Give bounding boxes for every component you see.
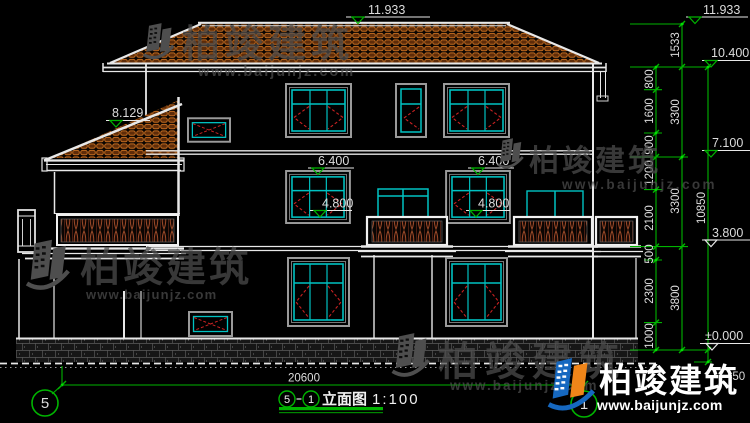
svg-text:www.baijunjz.com: www.baijunjz.com: [197, 64, 355, 80]
svg-text:www.baijunjz.com: www.baijunjz.com: [85, 287, 217, 302]
svg-text:6.400: 6.400: [318, 154, 349, 168]
window-1f-small: [189, 312, 232, 336]
svg-text:10.400: 10.400: [711, 46, 749, 60]
svg-text:5: 5: [41, 395, 49, 412]
marker-ridge-right: 11.933: [686, 3, 748, 24]
elevation-drawing-canvas: 800 1600 900 1200 2100 500 2300 1000 153…: [0, 0, 750, 423]
svg-text:3.800: 3.800: [712, 226, 743, 240]
title-axis-from: 5: [284, 394, 290, 406]
title-underline-thin: [279, 412, 383, 413]
window-3f-left: [286, 84, 351, 137]
marker-3800: 3.800: [702, 226, 750, 247]
floor-band-3f: [146, 151, 593, 154]
dim-800: 800: [644, 69, 656, 88]
terrace-pilaster: [18, 210, 35, 252]
balcony-side: [594, 217, 643, 338]
title-axis-to: 1: [308, 394, 314, 406]
svg-text:8.129: 8.129: [112, 106, 143, 120]
dim-3300-b: 3300: [670, 188, 682, 214]
dim-1533: 1533: [670, 32, 682, 58]
balcony-door-center: [378, 189, 428, 217]
watermark-right: 柏竣建筑 www.baijunjz.com: [498, 138, 717, 192]
svg-text:7.100: 7.100: [712, 136, 743, 150]
svg-text:柏竣建筑: 柏竣建筑: [80, 246, 252, 290]
elevation-drawing: 800 1600 900 1200 2100 500 2300 1000 153…: [0, 0, 750, 423]
svg-text:20600: 20600: [288, 373, 320, 385]
svg-text:11.933: 11.933: [368, 3, 405, 17]
svg-text:柏竣建筑: 柏竣建筑: [182, 24, 354, 66]
main-roof: [103, 23, 608, 101]
dim-3800: 3800: [670, 285, 682, 311]
dim-10850: 10850: [696, 192, 708, 224]
axis-bubble-left: 5: [32, 385, 62, 416]
balcony-door-right: [527, 191, 583, 217]
dim-500: 500: [644, 244, 656, 263]
title-underline: [279, 407, 383, 410]
window-1f-left: [288, 258, 349, 326]
window-3f-small: [188, 118, 230, 141]
marker-eave-right: 10.400: [702, 46, 750, 67]
logo-url: www.baijunjz.com: [596, 397, 723, 413]
svg-text:4.800: 4.800: [478, 197, 509, 211]
window-1f-right: [446, 258, 507, 326]
svg-text:11.933: 11.933: [703, 3, 740, 17]
site-logo: 柏竣建筑 www.baijunjz.com: [549, 358, 739, 413]
watermark-left: 柏竣建筑 www.baijunjz.com: [27, 240, 252, 302]
logo-text: 柏竣建筑: [599, 362, 739, 399]
svg-text:±0.000: ±0.000: [705, 329, 743, 343]
title-scale: 1:100: [372, 391, 420, 408]
dim-2100: 2100: [644, 205, 656, 231]
marker-ridge-center: 11.933: [346, 3, 430, 24]
dim-3300-a: 3300: [670, 99, 682, 125]
dim-2300: 2300: [644, 278, 656, 304]
marker-7100: 7.100: [702, 136, 750, 157]
window-3f-right: [444, 84, 509, 137]
gutter-downspout: [597, 72, 608, 101]
svg-text:柏竣建筑: 柏竣建筑: [529, 144, 661, 178]
dim-1000: 1000: [644, 323, 656, 349]
drawing-title: 5 1 立面图 1:100: [279, 390, 420, 413]
window-3f-center: [396, 84, 426, 137]
dim-1600: 1600: [644, 98, 656, 124]
title-name: 立面图: [322, 390, 367, 408]
svg-text:www.baijunjz.com: www.baijunjz.com: [561, 177, 717, 192]
svg-text:4.800: 4.800: [322, 197, 353, 211]
